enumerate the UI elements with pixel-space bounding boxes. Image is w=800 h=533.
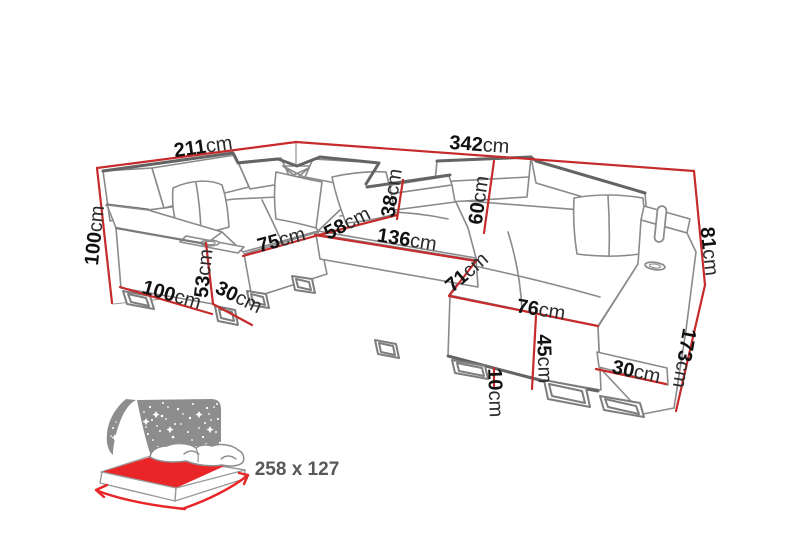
- svg-text:45cm: 45cm: [532, 334, 556, 384]
- svg-text:10cm: 10cm: [483, 368, 507, 418]
- svg-text:342cm: 342cm: [449, 132, 510, 158]
- svg-text:258 x 127: 258 x 127: [255, 459, 340, 480]
